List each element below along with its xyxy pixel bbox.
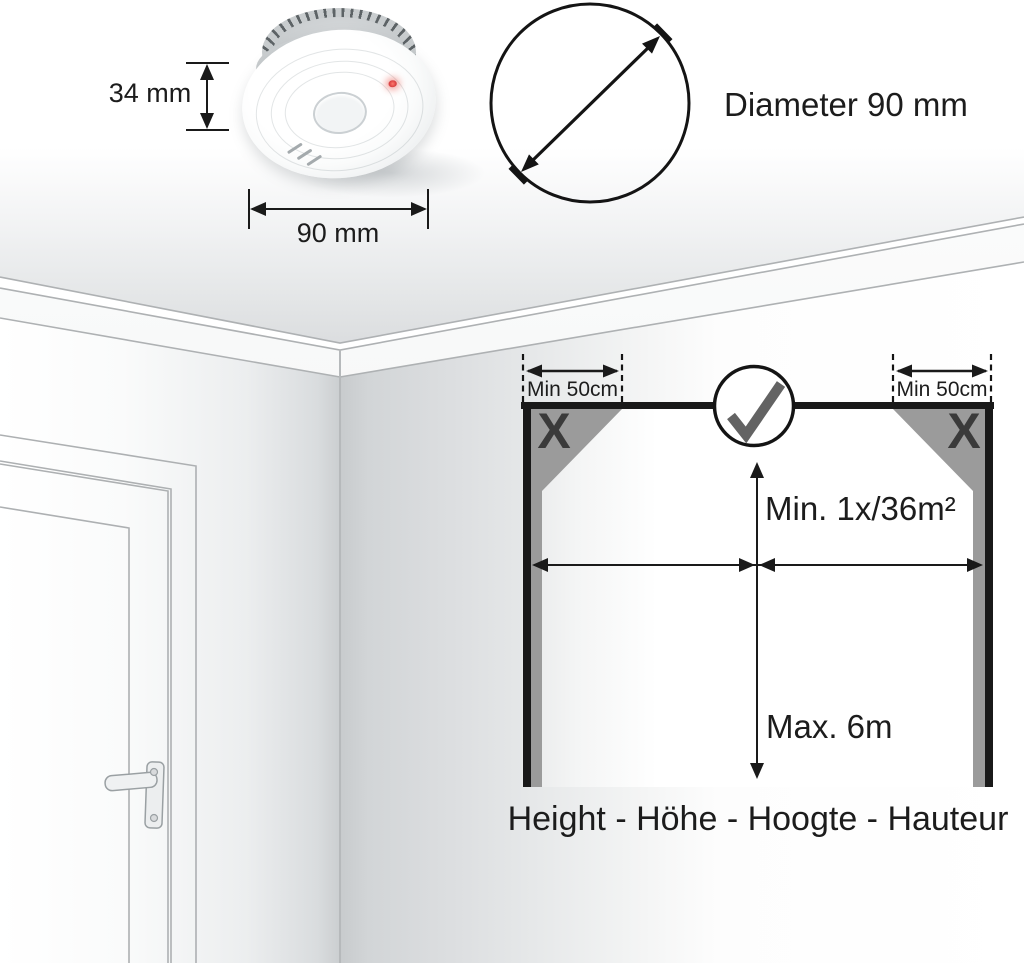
center-left-arrowhead-icon <box>759 558 775 572</box>
wrong-zone-marker-right: X <box>936 406 992 456</box>
diagram-left-wall <box>523 402 531 787</box>
door-leaf-edge-inner <box>0 464 168 963</box>
door-frame-outer <box>0 435 196 963</box>
door <box>0 435 196 963</box>
door-panel-bevel <box>0 507 129 963</box>
width-dimension-label: 90 mm <box>292 218 384 249</box>
diagram-right-wall <box>985 402 993 787</box>
clearance-arrow-left <box>526 365 619 378</box>
diagonal-diameter-arrow <box>510 25 670 183</box>
check-circle <box>715 367 794 446</box>
wrong-zone-marker-left: X <box>526 406 582 456</box>
up-arrowhead-icon <box>750 462 764 478</box>
diameter-diagram <box>491 4 689 202</box>
height-dimension-label: 34 mm <box>104 78 196 109</box>
down-arrowhead-icon <box>200 113 214 129</box>
clearance-label-left: Min 50cm <box>522 378 623 402</box>
up-arrowhead-icon <box>200 64 214 80</box>
installation-diagram <box>521 354 994 787</box>
clearance-label-right: Min 50cm <box>891 378 993 402</box>
max-height-label: Max. 6m <box>766 708 893 746</box>
right-arrowhead-icon <box>411 202 427 216</box>
no-mount-zone-left <box>531 409 622 787</box>
clearance-arrow-right <box>896 365 988 378</box>
center-right-arrowhead-icon <box>739 558 755 572</box>
no-mount-zone-right <box>893 409 985 787</box>
door-leaf-edge <box>0 461 171 963</box>
correct-position-marker <box>715 367 794 446</box>
room-edges <box>0 217 1024 963</box>
door-handle-screw <box>151 769 158 776</box>
door-handle-screw <box>151 815 158 822</box>
diameter-label: Diameter 90 mm <box>724 86 968 124</box>
left-arrowhead-icon <box>250 202 266 216</box>
vertical-height-arrow <box>750 462 764 779</box>
coverage-label: Min. 1x/36m² <box>765 490 956 528</box>
down-arrowhead-icon <box>750 763 764 779</box>
infographic: 34 mm 90 mm Diameter 90 mm Min 50cm Min … <box>0 0 1024 963</box>
height-caption: Height - Höhe - Hoogte - Hauteur <box>378 800 1024 839</box>
